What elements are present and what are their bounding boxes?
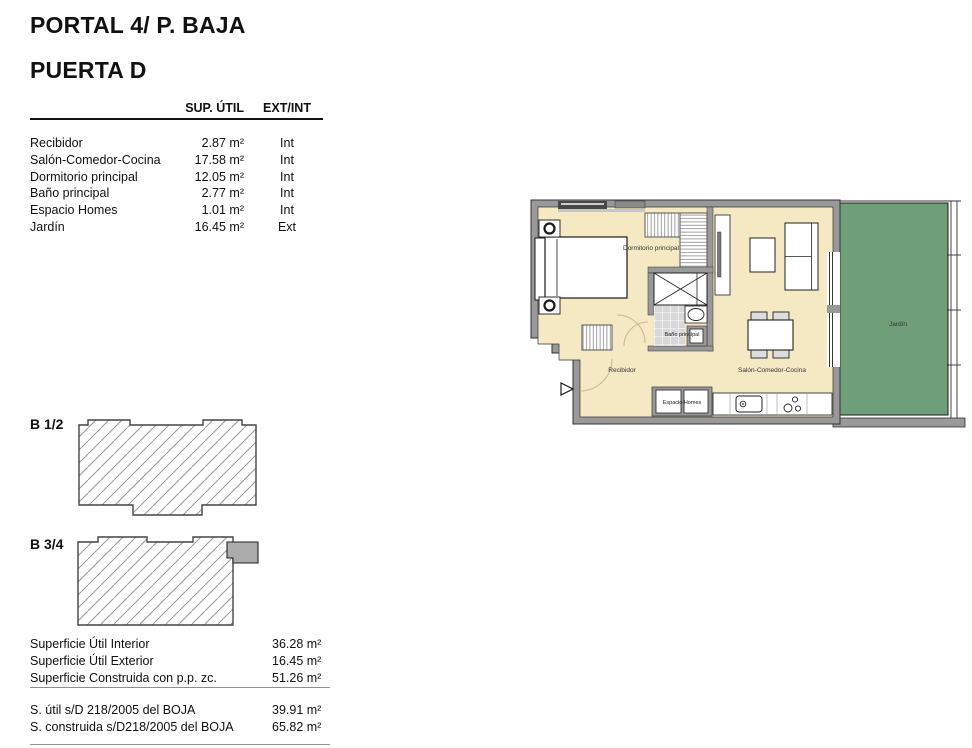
chair	[773, 350, 789, 358]
room-name: Jardín	[30, 219, 178, 236]
surface-summary: Superficie Útil Interior 36.28 m² Superf…	[30, 636, 321, 686]
room-type: Ext	[244, 219, 330, 236]
table-body: Recibidor 2.87 m² Int Salón-Comedor-Coci…	[30, 135, 332, 236]
lamp-icon	[545, 301, 555, 311]
summary-value: 65.82 m²	[272, 719, 321, 736]
table-row: Dormitorio principal 12.05 m² Int	[30, 169, 332, 186]
room-name: Recibidor	[30, 135, 178, 152]
summary-value: 36.28 m²	[272, 636, 321, 653]
shower	[654, 273, 707, 305]
room-label-dormitorio: Dormitorio principal	[623, 245, 680, 252]
header-sup-util: SUP. ÚTIL	[178, 101, 244, 116]
room-area: 2.77 m²	[178, 185, 244, 202]
room-label-bano: Baño principal	[665, 332, 700, 338]
room-name: Baño principal	[30, 185, 178, 202]
header-rule	[30, 118, 323, 120]
floorplan-sheet: PORTAL 4/ P. BAJA PUERTA D SUP. ÚTIL EXT…	[0, 0, 972, 748]
chair	[773, 312, 789, 320]
kitchen-sink	[736, 396, 762, 412]
summary-row: S. útil s/D 218/2005 del BOJA 39.91 m²	[30, 702, 321, 719]
room-type: Int	[244, 202, 330, 219]
summary-value: 39.91 m²	[272, 702, 321, 719]
page-title: PORTAL 4/ P. BAJA	[30, 12, 246, 39]
room-type: Int	[244, 135, 330, 152]
room-type: Int	[244, 169, 330, 186]
boja-summary: S. útil s/D 218/2005 del BOJA 39.91 m² S…	[30, 702, 321, 736]
bottom-line	[30, 744, 330, 745]
room-type: Int	[244, 152, 330, 169]
summary-row: S. construida s/D218/2005 del BOJA 65.82…	[30, 719, 321, 736]
key-plan-label-b34: B 3/4	[30, 536, 63, 552]
floorplan-drawing: Dormitorio principal Baño principal Reci…	[527, 193, 967, 433]
summary-label: S. útil s/D 218/2005 del BOJA	[30, 702, 272, 719]
room-area: 2.87 m²	[178, 135, 244, 152]
table-row: Recibidor 2.87 m² Int	[30, 135, 332, 152]
key-plan-b12	[75, 415, 260, 520]
partition-wall	[707, 207, 713, 351]
summary-row: Superficie Construida con p.p. zc. 51.26…	[30, 670, 321, 687]
summary-value: 51.26 m²	[272, 670, 321, 687]
table-row: Espacio Homes 1.01 m² Int	[30, 202, 332, 219]
kitchen-counter	[713, 393, 832, 415]
room-area: 17.58 m²	[178, 152, 244, 169]
separator-line	[30, 687, 330, 688]
summary-row: Superficie Útil Interior 36.28 m²	[30, 636, 321, 653]
summary-row: Superficie Útil Exterior 16.45 m²	[30, 653, 321, 670]
table-row: Jardín 16.45 m² Ext	[30, 219, 332, 236]
summary-value: 16.45 m²	[272, 653, 321, 670]
chair	[751, 312, 767, 320]
room-name: Salón-Comedor-Cocina	[30, 152, 178, 169]
bath-sink	[685, 306, 707, 323]
summary-label: Superficie Construida con p.p. zc.	[30, 670, 272, 687]
table-header-row: SUP. ÚTIL EXT/INT	[30, 101, 332, 116]
sofa	[785, 223, 818, 290]
room-area: 12.05 m²	[178, 169, 244, 186]
coffee-table	[750, 238, 775, 272]
fence	[947, 201, 961, 422]
summary-label: Superficie Útil Exterior	[30, 653, 272, 670]
room-name: Dormitorio principal	[30, 169, 178, 186]
tv-unit	[715, 215, 730, 295]
key-plan-label-b12: B 1/2	[30, 416, 63, 432]
room-label-salon: Salón-Comedor-Cocina	[738, 367, 806, 374]
summary-label: S. construida s/D218/2005 del BOJA	[30, 719, 272, 736]
entry-arrow-icon	[561, 383, 573, 395]
bathroom-tile-floor	[654, 305, 685, 346]
table-row: Baño principal 2.77 m² Int	[30, 185, 332, 202]
key-plan-b34	[75, 533, 260, 633]
building-outline	[78, 537, 233, 625]
chair	[751, 350, 767, 358]
room-label-jardin: Jardín	[889, 321, 907, 328]
building-outline	[79, 420, 256, 515]
header-spacer	[30, 101, 178, 116]
table-row: Salón-Comedor-Cocina 17.58 m² Int	[30, 152, 332, 169]
lamp-icon	[545, 224, 555, 234]
garden-bottom-wall	[833, 418, 965, 427]
summary-label: Superficie Útil Interior	[30, 636, 272, 653]
room-area-table: SUP. ÚTIL EXT/INT Recibidor 2.87 m² Int …	[30, 101, 332, 236]
header-ext-int: EXT/INT	[244, 101, 330, 116]
room-name: Espacio Homes	[30, 202, 178, 219]
page-subtitle: PUERTA D	[30, 57, 147, 84]
bathroom	[648, 267, 713, 351]
room-area: 16.45 m²	[178, 219, 244, 236]
room-type: Int	[244, 185, 330, 202]
window	[558, 201, 645, 212]
garden	[840, 203, 948, 415]
hall-closet	[582, 325, 612, 350]
sliding-door	[827, 252, 840, 367]
room-area: 1.01 m²	[178, 202, 244, 219]
room-label-recibidor: Recibidor	[608, 367, 636, 374]
room-label-espacio: Espacio Homes	[663, 400, 702, 406]
